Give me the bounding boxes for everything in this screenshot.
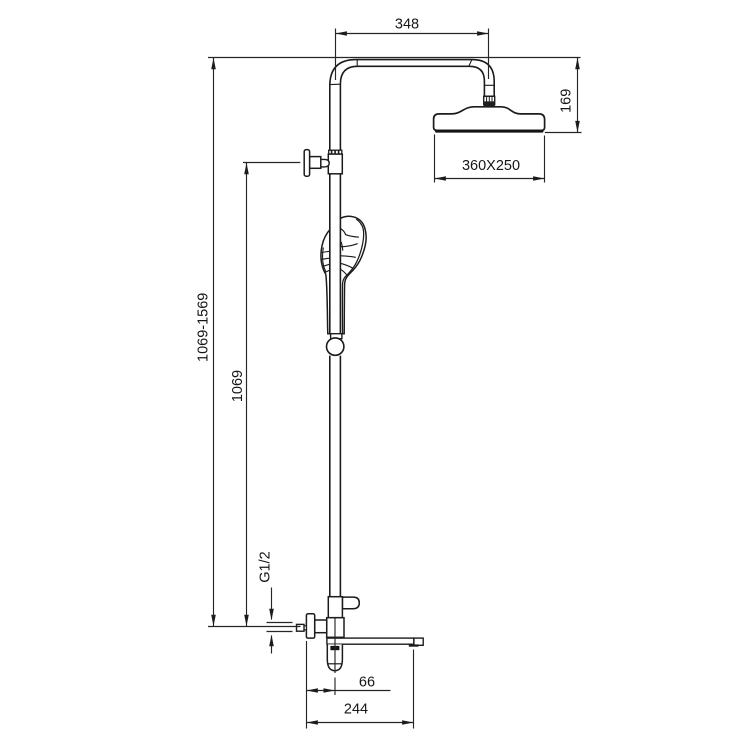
svg-text:348: 348	[395, 17, 419, 33]
svg-text:1069-1569: 1069-1569	[196, 293, 212, 362]
svg-text:360X250: 360X250	[462, 158, 520, 174]
svg-text:G1/2: G1/2	[258, 551, 274, 582]
svg-text:244: 244	[344, 702, 368, 718]
svg-text:66: 66	[359, 675, 375, 691]
svg-text:1069: 1069	[230, 370, 246, 402]
svg-text:169: 169	[559, 89, 575, 113]
